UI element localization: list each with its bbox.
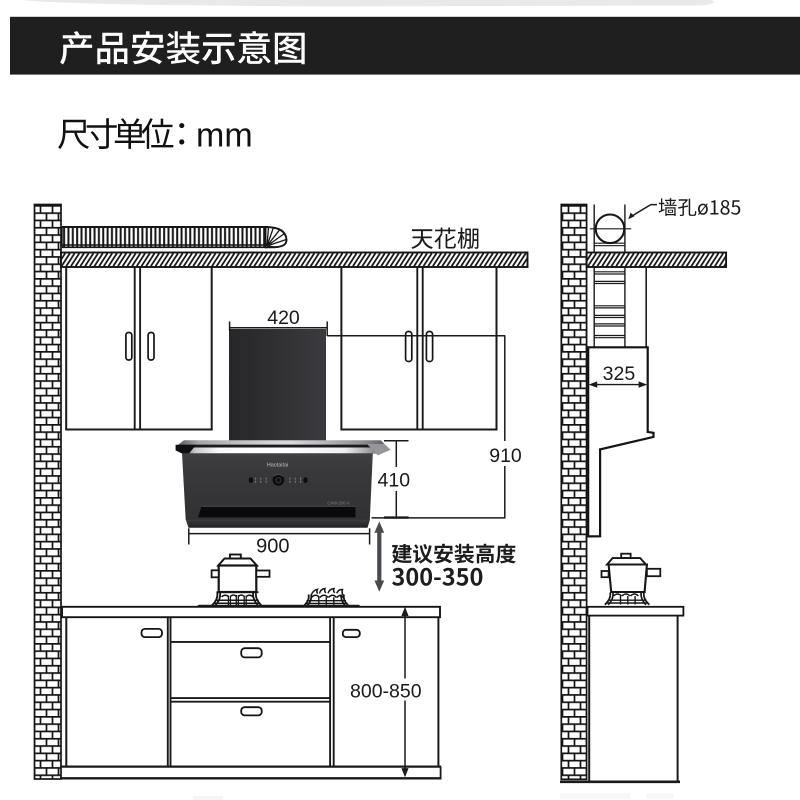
svg-text:325: 325 — [603, 363, 636, 385]
svg-text:Haotaitai: Haotaitai — [267, 463, 288, 469]
svg-text:410: 410 — [378, 470, 411, 492]
svg-text:800-850: 800-850 — [350, 681, 422, 703]
svg-text:CXW-200-X: CXW-200-X — [327, 501, 349, 506]
svg-text:910: 910 — [489, 445, 522, 467]
svg-text:420: 420 — [267, 307, 300, 329]
svg-text:mm: mm — [196, 116, 253, 154]
svg-text:900: 900 — [256, 536, 289, 558]
